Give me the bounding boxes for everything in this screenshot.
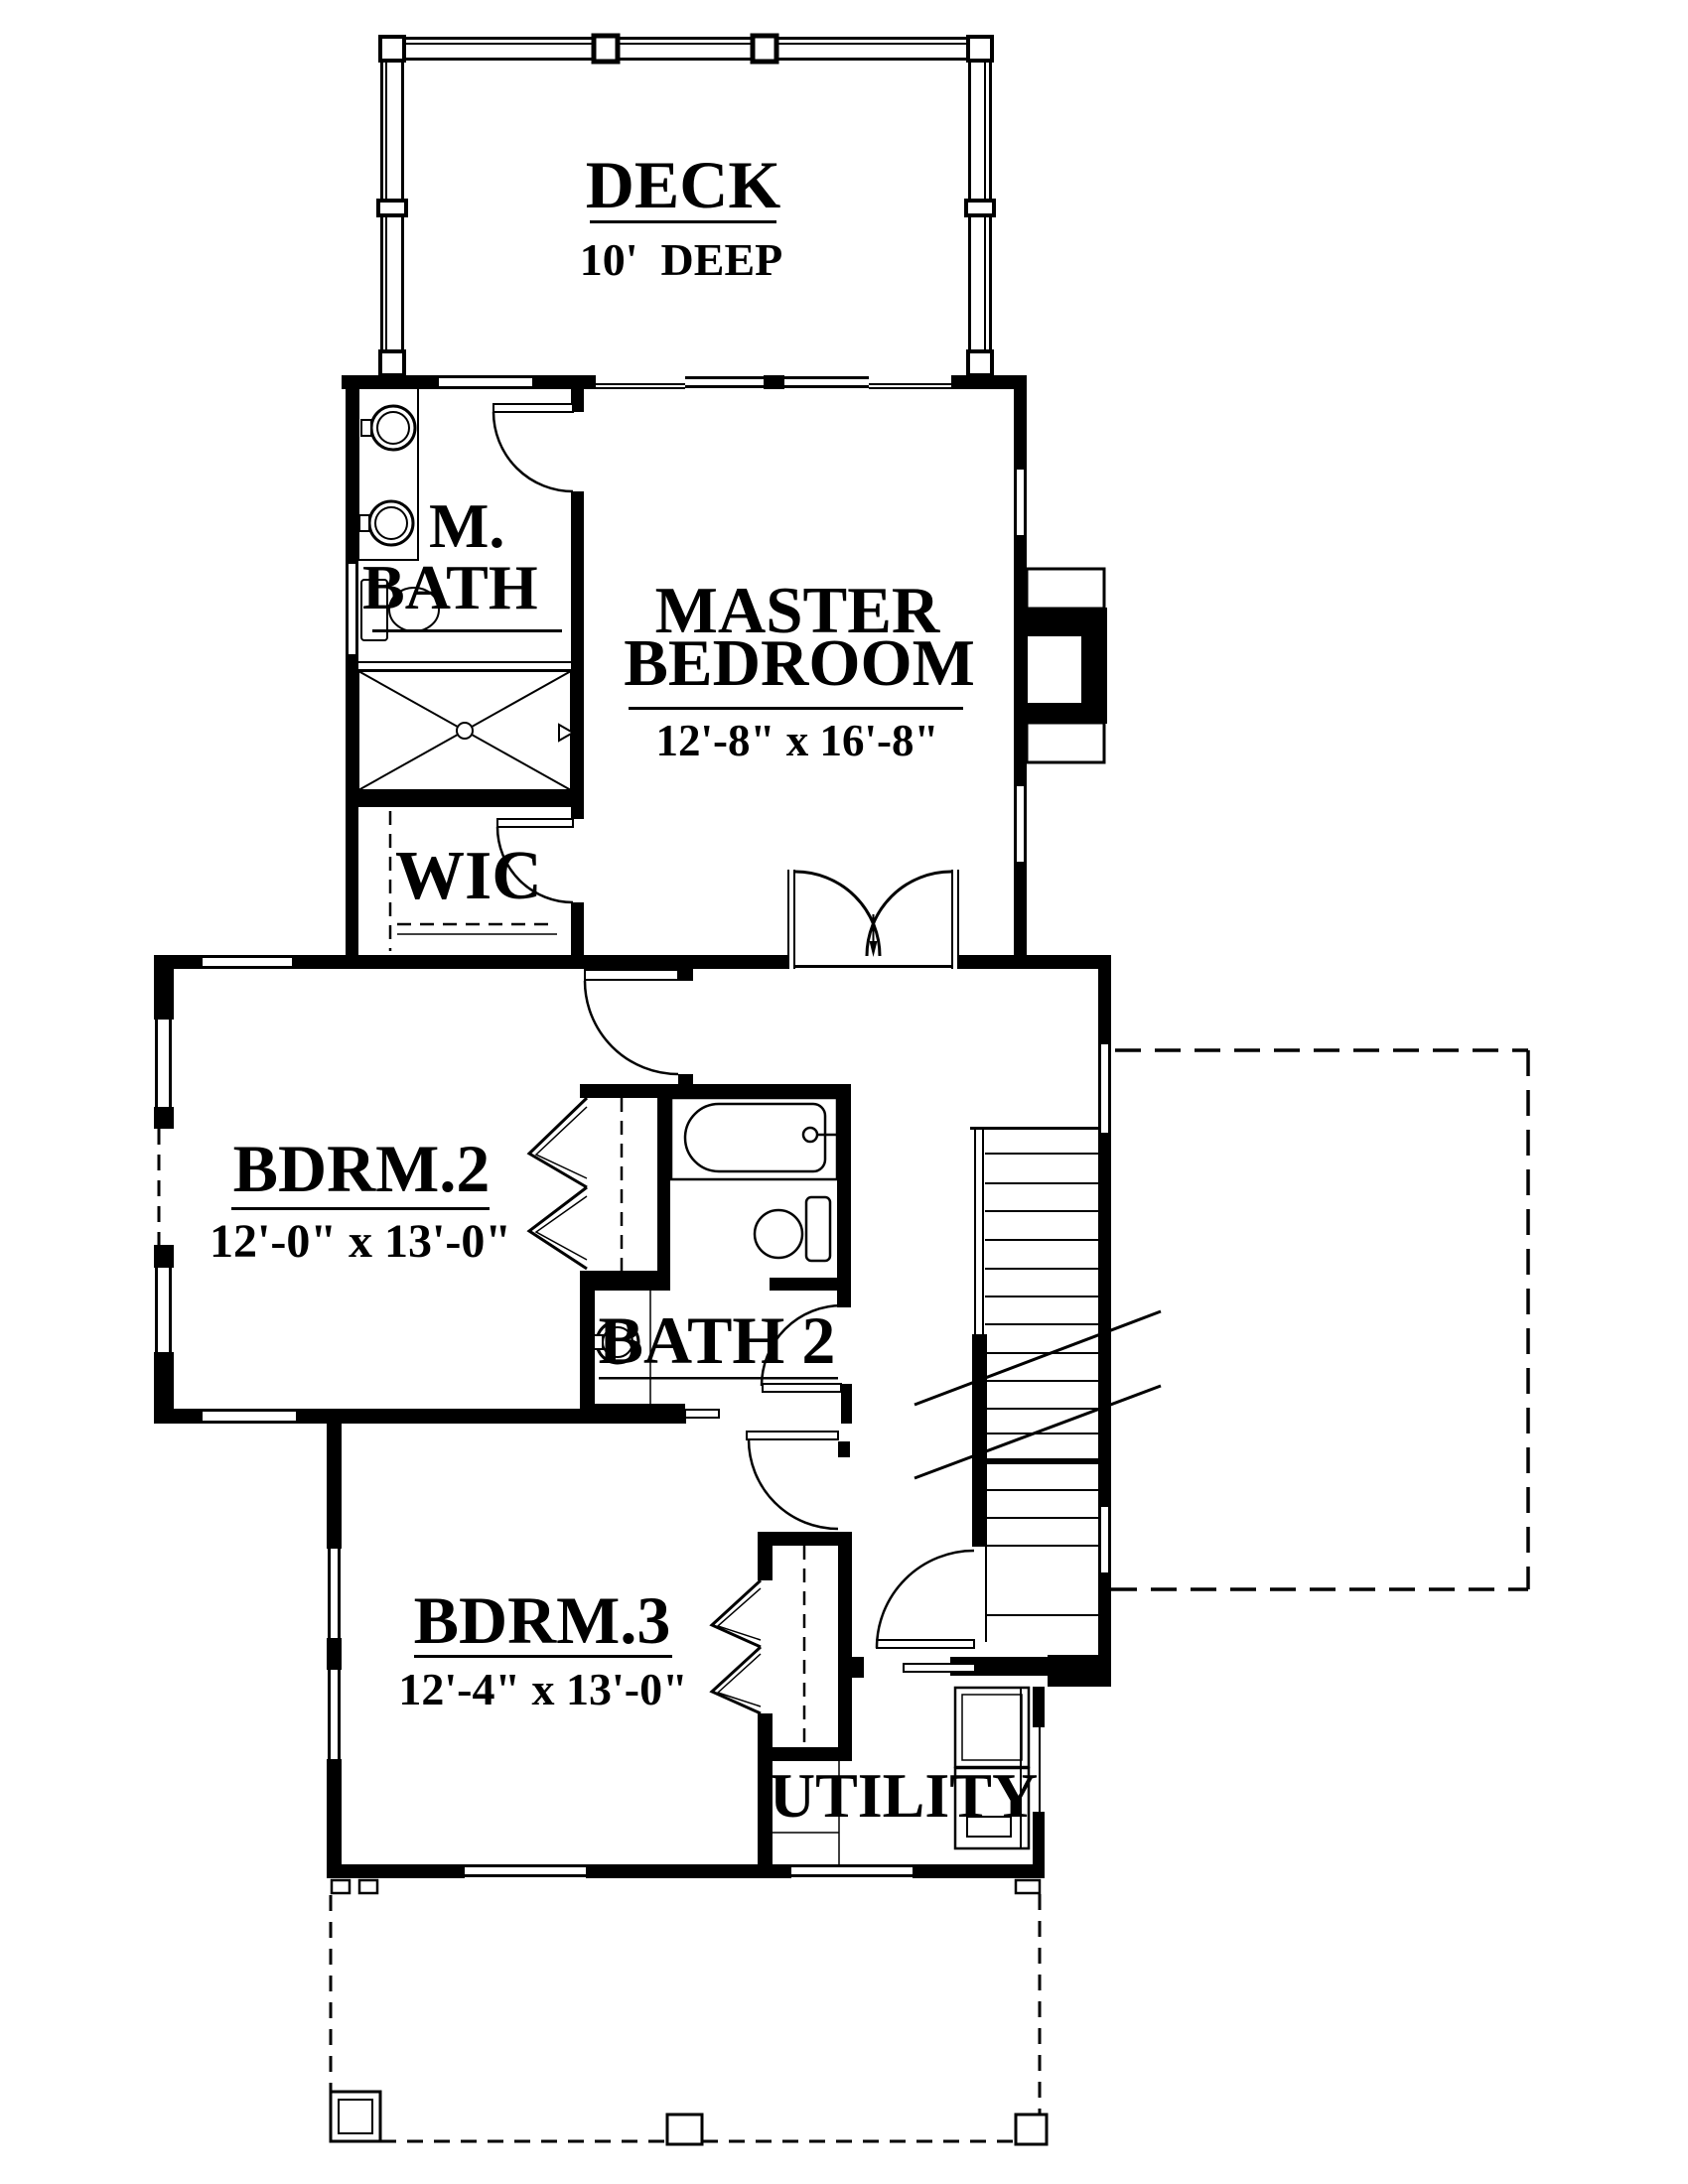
- svg-text:12'-8" x 16'-8": 12'-8" x 16'-8": [656, 716, 939, 765]
- svg-text:12'-4" x 13'-0": 12'-4" x 13'-0": [398, 1664, 687, 1714]
- svg-text:10' DEEP: 10' DEEP: [580, 234, 782, 285]
- svg-text:WIC: WIC: [395, 838, 542, 914]
- svg-text:BEDROOM: BEDROOM: [624, 626, 975, 700]
- svg-text:BATH: BATH: [362, 552, 538, 622]
- svg-text:M.: M.: [429, 490, 504, 561]
- svg-text:BDRM.2: BDRM.2: [233, 1131, 491, 1206]
- svg-text:BDRM.3: BDRM.3: [414, 1582, 671, 1658]
- svg-text:UTILITY: UTILITY: [770, 1760, 1038, 1831]
- svg-text:12'-0" x 13'-0": 12'-0" x 13'-0": [210, 1215, 511, 1268]
- svg-text:BATH 2: BATH 2: [599, 1302, 836, 1378]
- svg-text:DECK: DECK: [586, 147, 781, 222]
